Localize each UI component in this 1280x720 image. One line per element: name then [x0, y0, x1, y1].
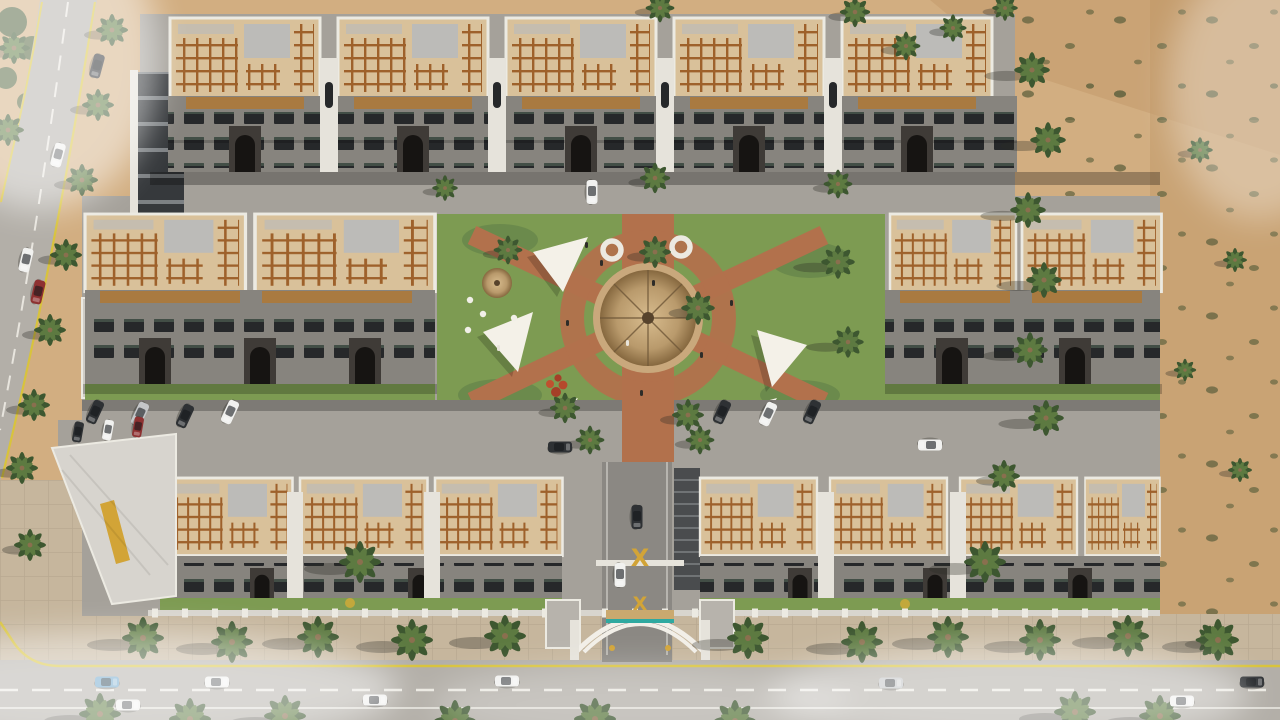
car: [917, 438, 943, 451]
gate-canopy-teal: [606, 619, 674, 623]
rooftop-terrace: [700, 478, 817, 556]
arched-entrance: [788, 568, 812, 603]
rooftop-terrace: [842, 18, 992, 98]
rooftop-terrace: [300, 478, 428, 556]
balcony-screen: [262, 291, 412, 303]
arched-entrance: [397, 126, 429, 172]
yellow-shrub: [345, 598, 355, 608]
gate-logo-upper: X: [631, 544, 650, 572]
arched-entrance: [565, 126, 597, 172]
rooftop-terrace: [435, 478, 563, 556]
arched-entrance: [244, 338, 276, 384]
front-garden-east: [700, 598, 1160, 612]
arched-entrance: [139, 338, 171, 384]
gate-logo-lower: X: [633, 593, 648, 615]
rooftop-terrace: [338, 18, 488, 98]
arched-entrance: [1068, 568, 1092, 603]
rooftop-terrace: [255, 214, 435, 292]
balcony-screen: [1032, 291, 1142, 303]
facade-shadow: [83, 384, 437, 394]
street2-shadow: [82, 400, 1160, 411]
arched-entrance: [936, 338, 968, 384]
rooftop-terrace: [165, 478, 293, 556]
garage-ramp: [674, 468, 700, 590]
gazebo-peak: [642, 312, 654, 324]
car: [613, 562, 626, 588]
balcony-screen: [100, 291, 240, 303]
arched-entrance: [901, 126, 933, 172]
arched-entrance: [733, 126, 765, 172]
walkway-crossing: [622, 400, 674, 462]
front-garden-west: [160, 598, 562, 612]
car: [585, 179, 598, 205]
rooftop-terrace: [890, 214, 1016, 292]
compound-aerial-view: X X: [0, 0, 1280, 720]
gold-bollard: [609, 645, 615, 651]
gate-pylon-west: [570, 620, 579, 660]
gold-bollard: [665, 645, 671, 651]
rooftop-terrace: [830, 478, 947, 556]
rooftop-terrace: [1085, 478, 1160, 556]
car: [630, 504, 643, 530]
yellow-shrub: [900, 599, 910, 609]
rooftop-terrace: [170, 18, 320, 98]
rooftop-terrace: [85, 214, 246, 292]
building-cluster-east: [883, 214, 1162, 400]
building-row-top: [168, 18, 1017, 172]
rooftop-terrace: [674, 18, 824, 98]
arched-entrance: [1059, 338, 1091, 384]
rooftop-terrace: [506, 18, 656, 98]
arched-entrance: [250, 568, 274, 603]
arched-entrance: [229, 126, 261, 172]
aerial-render-canvas: X X: [0, 0, 1280, 720]
building-cluster-west: [83, 214, 437, 400]
arched-entrance: [349, 338, 381, 384]
rooftop-terrace: [960, 478, 1077, 556]
facade-shadow: [883, 384, 1162, 394]
car: [547, 442, 573, 455]
balcony-screen: [900, 291, 1010, 303]
